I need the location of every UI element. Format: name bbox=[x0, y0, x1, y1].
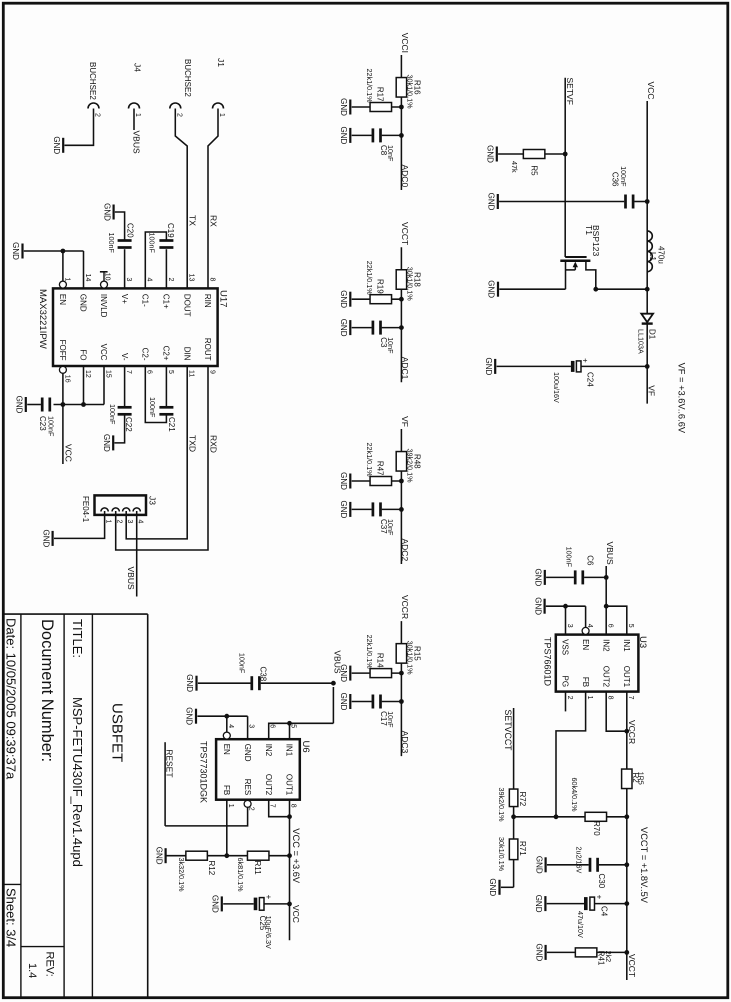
svg-text:100nF: 100nF bbox=[148, 233, 157, 254]
svg-text:RES: RES bbox=[243, 779, 252, 795]
svg-text:C1-: C1- bbox=[141, 294, 150, 307]
svg-text:30k1/0.1%: 30k1/0.1% bbox=[405, 75, 414, 110]
svg-text:TPS77301DGK: TPS77301DGK bbox=[199, 741, 209, 803]
svg-text:REV:: REV: bbox=[44, 952, 56, 977]
svg-text:GND: GND bbox=[41, 530, 50, 548]
svg-text:GND: GND bbox=[339, 127, 348, 145]
svg-text:EN: EN bbox=[222, 744, 231, 755]
svg-text:LL103A: LL103A bbox=[636, 329, 645, 354]
svg-text:C17: C17 bbox=[379, 711, 388, 726]
svg-text:C23: C23 bbox=[38, 416, 47, 431]
svg-text:OUT1: OUT1 bbox=[622, 666, 631, 688]
svg-text:GND: GND bbox=[15, 396, 24, 414]
svg-text:3: 3 bbox=[566, 624, 573, 628]
svg-text:VF: VF bbox=[400, 416, 410, 427]
svg-text:C3: C3 bbox=[379, 337, 388, 348]
svg-text:J1: J1 bbox=[216, 58, 226, 67]
svg-text:GND: GND bbox=[488, 878, 497, 896]
svg-text:1: 1 bbox=[586, 696, 593, 700]
svg-text:R12: R12 bbox=[207, 861, 216, 876]
svg-text:GND: GND bbox=[484, 358, 493, 376]
svg-text:DOUT: DOUT bbox=[182, 294, 191, 317]
svg-text:2: 2 bbox=[566, 696, 573, 700]
svg-text:2u2/16V: 2u2/16V bbox=[574, 847, 583, 874]
svg-text:GND: GND bbox=[243, 744, 252, 762]
svg-text:6: 6 bbox=[607, 624, 614, 628]
svg-text:GND: GND bbox=[534, 895, 543, 913]
svg-text:VBUS: VBUS bbox=[332, 650, 342, 673]
svg-text:R5: R5 bbox=[530, 165, 539, 176]
svg-text:2: 2 bbox=[176, 113, 183, 117]
svg-text:22k1/0.1%: 22k1/0.1% bbox=[365, 635, 374, 670]
svg-text:C24: C24 bbox=[585, 372, 594, 387]
svg-text:C38: C38 bbox=[259, 667, 268, 682]
svg-text:IN2: IN2 bbox=[264, 744, 273, 757]
svg-text:L1: L1 bbox=[648, 252, 657, 261]
svg-text:R19: R19 bbox=[376, 279, 385, 294]
svg-text:FB: FB bbox=[581, 677, 590, 687]
svg-text:VCCT: VCCT bbox=[627, 954, 637, 977]
svg-text:R41: R41 bbox=[597, 951, 606, 966]
svg-text:3: 3 bbox=[248, 724, 255, 728]
svg-text:100nF: 100nF bbox=[148, 397, 157, 418]
svg-text:8: 8 bbox=[607, 696, 614, 700]
svg-text:30k1/0.1%: 30k1/0.1% bbox=[405, 641, 414, 676]
svg-text:C8: C8 bbox=[379, 145, 388, 156]
svg-text:R2: R2 bbox=[631, 773, 640, 784]
svg-text:GND: GND bbox=[339, 319, 348, 337]
svg-text:100nF: 100nF bbox=[565, 547, 574, 568]
svg-text:C6: C6 bbox=[586, 555, 595, 566]
svg-text:R72: R72 bbox=[518, 792, 527, 807]
svg-text:VF = +3.6V..6.6V: VF = +3.6V..6.6V bbox=[676, 363, 686, 434]
svg-text:C20: C20 bbox=[126, 223, 135, 238]
svg-text:PG: PG bbox=[561, 676, 570, 688]
svg-text:IN1: IN1 bbox=[622, 639, 631, 652]
svg-text:2: 2 bbox=[167, 277, 174, 281]
svg-text:GND: GND bbox=[533, 597, 542, 615]
svg-text:INVLD: INVLD bbox=[99, 294, 108, 318]
svg-text:EN: EN bbox=[58, 294, 67, 305]
svg-text:U6: U6 bbox=[300, 741, 311, 753]
svg-text:47u/10V: 47u/10V bbox=[576, 911, 585, 938]
svg-text:R71: R71 bbox=[518, 841, 527, 856]
svg-text:GND: GND bbox=[211, 895, 220, 913]
svg-text:GND: GND bbox=[339, 290, 348, 308]
svg-text:EN: EN bbox=[581, 639, 590, 650]
svg-text:IN2: IN2 bbox=[601, 639, 610, 652]
svg-text:GND: GND bbox=[185, 674, 194, 692]
svg-text:4: 4 bbox=[227, 724, 234, 728]
svg-text:100nF: 100nF bbox=[238, 653, 247, 674]
svg-text:1: 1 bbox=[227, 804, 234, 808]
svg-text:SETVF: SETVF bbox=[565, 78, 575, 105]
svg-text:ADC2: ADC2 bbox=[400, 539, 410, 562]
svg-text:C30: C30 bbox=[597, 874, 606, 889]
svg-text:VBUS: VBUS bbox=[126, 567, 136, 590]
svg-text:OUT2: OUT2 bbox=[601, 666, 610, 688]
svg-text:J3: J3 bbox=[148, 496, 158, 505]
svg-text:100nF: 100nF bbox=[108, 404, 117, 425]
svg-text:C1+: C1+ bbox=[162, 294, 171, 309]
svg-text:39k2/0.1%: 39k2/0.1% bbox=[405, 449, 414, 484]
svg-text:U3: U3 bbox=[637, 636, 648, 648]
svg-text:GND: GND bbox=[79, 294, 88, 312]
svg-text:6: 6 bbox=[269, 724, 276, 728]
svg-text:39k2/0.1%: 39k2/0.1% bbox=[497, 788, 506, 823]
svg-text:VCC = +3.6V: VCC = +3.6V bbox=[291, 828, 301, 884]
svg-text:22k1/0.1%: 22k1/0.1% bbox=[365, 69, 374, 104]
svg-text:30k1/0.1%: 30k1/0.1% bbox=[405, 267, 414, 302]
svg-text:R17: R17 bbox=[376, 87, 385, 102]
svg-text:5: 5 bbox=[627, 624, 634, 628]
svg-text:Document Number:: Document Number: bbox=[38, 619, 56, 762]
svg-text:OUT2: OUT2 bbox=[264, 774, 273, 796]
svg-text:RX: RX bbox=[208, 215, 218, 227]
svg-text:OUT1: OUT1 bbox=[285, 774, 294, 796]
svg-text:11: 11 bbox=[188, 370, 195, 377]
svg-text:VF: VF bbox=[646, 385, 656, 396]
svg-text:1: 1 bbox=[134, 113, 141, 117]
svg-text:GND: GND bbox=[339, 693, 348, 711]
svg-text:13: 13 bbox=[188, 274, 195, 282]
svg-text:12: 12 bbox=[84, 370, 91, 378]
svg-text:7: 7 bbox=[627, 696, 634, 700]
svg-text:3: 3 bbox=[125, 277, 132, 281]
svg-text:VCCT = +1.8V..5V: VCCT = +1.8V..5V bbox=[639, 827, 649, 904]
svg-text:+: + bbox=[580, 358, 589, 363]
svg-text:D1: D1 bbox=[648, 329, 657, 340]
svg-text:T1: T1 bbox=[584, 225, 594, 235]
svg-text:VCC: VCC bbox=[646, 82, 656, 100]
svg-text:47k: 47k bbox=[510, 161, 519, 173]
svg-text:4: 4 bbox=[137, 520, 144, 524]
svg-text:IN1: IN1 bbox=[285, 744, 294, 757]
svg-text:+: + bbox=[264, 895, 273, 900]
svg-text:FO: FO bbox=[79, 349, 88, 360]
svg-text:GND: GND bbox=[486, 145, 495, 163]
svg-text:V+: V+ bbox=[120, 294, 129, 304]
svg-text:C25: C25 bbox=[258, 916, 267, 931]
svg-text:2: 2 bbox=[94, 113, 101, 117]
svg-text:6: 6 bbox=[146, 370, 153, 374]
svg-text:GND: GND bbox=[11, 242, 20, 260]
svg-text:VCC: VCC bbox=[63, 444, 73, 462]
svg-text:TPS76601D: TPS76601D bbox=[543, 637, 553, 687]
svg-text:GND: GND bbox=[534, 944, 543, 962]
svg-text:10: 10 bbox=[104, 273, 111, 281]
svg-text:6k81/0.1%: 6k81/0.1% bbox=[236, 858, 245, 893]
svg-text:VCCT: VCCT bbox=[400, 222, 410, 245]
svg-text:U17: U17 bbox=[218, 290, 229, 307]
svg-text:GND: GND bbox=[185, 707, 194, 725]
svg-text:C22: C22 bbox=[124, 417, 133, 432]
svg-text:TX: TX bbox=[187, 215, 197, 226]
svg-text:1.4: 1.4 bbox=[26, 963, 38, 978]
svg-text:9: 9 bbox=[208, 370, 215, 374]
svg-text:3k32/0.1%: 3k32/0.1% bbox=[177, 858, 186, 893]
svg-text:22k1/0.1%: 22k1/0.1% bbox=[365, 443, 374, 478]
svg-text:GND: GND bbox=[487, 193, 496, 211]
svg-text:3: 3 bbox=[126, 520, 133, 524]
svg-text:C4: C4 bbox=[600, 906, 609, 917]
svg-text:C37: C37 bbox=[379, 519, 388, 534]
svg-text:100nF: 100nF bbox=[107, 233, 116, 254]
svg-text:2: 2 bbox=[116, 520, 123, 524]
svg-text:GND: GND bbox=[102, 434, 111, 452]
svg-text:Sheet: 3/4: Sheet: 3/4 bbox=[4, 888, 19, 947]
svg-text:4: 4 bbox=[146, 277, 153, 281]
svg-text:ROUT: ROUT bbox=[203, 338, 212, 361]
svg-text:16: 16 bbox=[63, 375, 70, 383]
svg-text:7: 7 bbox=[125, 370, 132, 374]
svg-text:ADC0: ADC0 bbox=[400, 165, 410, 188]
svg-text:MSP-FETU430IF_Rev1.4upd: MSP-FETU430IF_Rev1.4upd bbox=[70, 697, 85, 867]
svg-text:1: 1 bbox=[218, 113, 225, 117]
svg-text:GND: GND bbox=[102, 203, 111, 221]
svg-text:V-: V- bbox=[120, 353, 129, 361]
svg-text:+: + bbox=[595, 895, 604, 900]
svg-text:TITLE:: TITLE: bbox=[70, 619, 85, 658]
svg-text:C36: C36 bbox=[611, 172, 620, 187]
svg-text:7: 7 bbox=[269, 804, 276, 808]
svg-text:R14: R14 bbox=[376, 653, 385, 668]
svg-text:GND: GND bbox=[339, 98, 348, 116]
svg-text:VBUS: VBUS bbox=[605, 542, 615, 565]
svg-text:GND: GND bbox=[487, 280, 496, 298]
svg-text:VCCR: VCCR bbox=[400, 595, 410, 619]
svg-text:TXD: TXD bbox=[187, 435, 197, 452]
svg-text:30k1/0.1%: 30k1/0.1% bbox=[497, 837, 506, 872]
svg-text:8: 8 bbox=[208, 277, 215, 281]
svg-text:Date: 10/05/2005 09:39:37a: Date: 10/05/2005 09:39:37a bbox=[4, 618, 19, 780]
svg-text:R47: R47 bbox=[376, 461, 385, 476]
svg-text:FB: FB bbox=[222, 785, 231, 795]
svg-text:RIN: RIN bbox=[203, 294, 212, 308]
svg-text:J4: J4 bbox=[133, 63, 143, 72]
svg-text:DIN: DIN bbox=[182, 347, 191, 361]
svg-text:1: 1 bbox=[105, 520, 112, 524]
svg-text:R70: R70 bbox=[592, 821, 601, 836]
svg-text:RESET: RESET bbox=[165, 749, 175, 777]
svg-text:FOFF: FOFF bbox=[58, 340, 67, 361]
svg-text:FE04-1: FE04-1 bbox=[81, 496, 90, 523]
svg-text:15: 15 bbox=[104, 370, 111, 378]
svg-text:ADC1: ADC1 bbox=[400, 357, 410, 380]
svg-text:VCC: VCC bbox=[99, 344, 108, 361]
svg-text:100u/16V: 100u/16V bbox=[552, 372, 561, 403]
svg-text:C2+: C2+ bbox=[162, 346, 171, 361]
svg-text:VSS: VSS bbox=[561, 639, 570, 655]
svg-text:C2-: C2- bbox=[141, 348, 150, 361]
svg-text:GND: GND bbox=[339, 501, 348, 519]
svg-text:GND: GND bbox=[534, 569, 543, 587]
svg-text:8: 8 bbox=[290, 804, 297, 808]
svg-text:VCC: VCC bbox=[291, 905, 301, 923]
svg-text:ADC3: ADC3 bbox=[400, 731, 410, 754]
svg-text:14: 14 bbox=[84, 274, 91, 282]
svg-text:VCCR: VCCR bbox=[627, 720, 637, 744]
svg-text:R11: R11 bbox=[253, 861, 262, 876]
svg-text:MAX3221IPW: MAX3221IPW bbox=[37, 289, 48, 349]
svg-text:GND: GND bbox=[154, 847, 163, 865]
svg-text:GND: GND bbox=[534, 856, 543, 874]
svg-text:5: 5 bbox=[167, 370, 174, 374]
svg-text:22k1/0.1%: 22k1/0.1% bbox=[365, 261, 374, 296]
svg-text:C19: C19 bbox=[166, 223, 175, 238]
svg-text:60k4/0.1%: 60k4/0.1% bbox=[570, 778, 579, 813]
svg-text:SETVCCT: SETVCCT bbox=[503, 710, 513, 752]
svg-text:VBUS: VBUS bbox=[132, 131, 142, 154]
svg-text:RXD: RXD bbox=[208, 435, 218, 453]
svg-text:VCCI: VCCI bbox=[400, 33, 410, 53]
svg-text:BUCHSE2: BUCHSE2 bbox=[183, 59, 192, 97]
svg-text:GND: GND bbox=[339, 472, 348, 490]
svg-text:GND: GND bbox=[52, 136, 61, 154]
svg-text:USBFET: USBFET bbox=[109, 703, 126, 762]
svg-text:BUCHSE2: BUCHSE2 bbox=[88, 62, 97, 100]
svg-text:C21: C21 bbox=[167, 417, 176, 432]
